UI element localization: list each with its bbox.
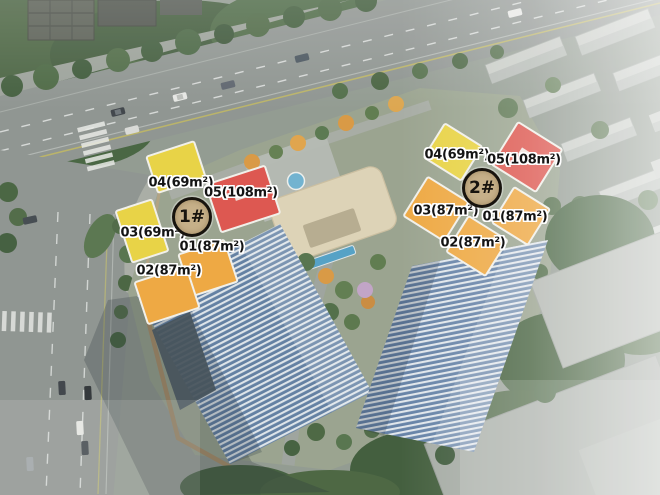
tower2-unit-01-label: 01(87m²) <box>483 210 548 225</box>
tower1-unit-05-label: 05(108m²) <box>204 186 278 201</box>
tower2-badge: 2# <box>462 168 502 208</box>
tower1-unit-02-label: 02(87m²) <box>137 264 202 279</box>
haze-overlays <box>0 0 660 495</box>
site-render <box>0 0 660 495</box>
tower1-badge: 1# <box>172 197 212 237</box>
tower1-unit-01-label: 01(87m²) <box>180 240 245 255</box>
tower2-unit-03-label: 03(87m²) <box>414 204 479 219</box>
tower2-unit-04-label: 04(69m²) <box>425 148 490 163</box>
tower2-unit-02-label: 02(87m²) <box>441 236 506 251</box>
tower2-unit-05-label: 05(108m²) <box>487 153 561 168</box>
aerial-site-plan: 04(69m²) 05(108m²) 03(69m²) 01(87m²) 02(… <box>0 0 660 495</box>
